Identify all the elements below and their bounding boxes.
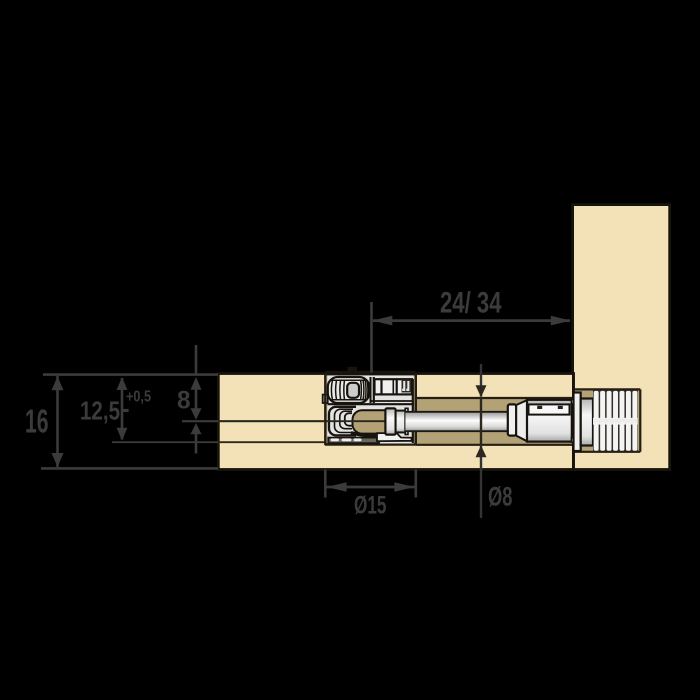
svg-text:Ø15: Ø15 [354, 492, 387, 520]
svg-text:8: 8 [177, 387, 191, 415]
svg-text:12,5: 12,5 [80, 396, 120, 426]
svg-text:24/ 34: 24/ 34 [440, 287, 502, 320]
svg-text:Ø8: Ø8 [488, 482, 513, 512]
svg-text:+0,5: +0,5 [126, 389, 151, 406]
svg-text:16: 16 [25, 403, 49, 440]
